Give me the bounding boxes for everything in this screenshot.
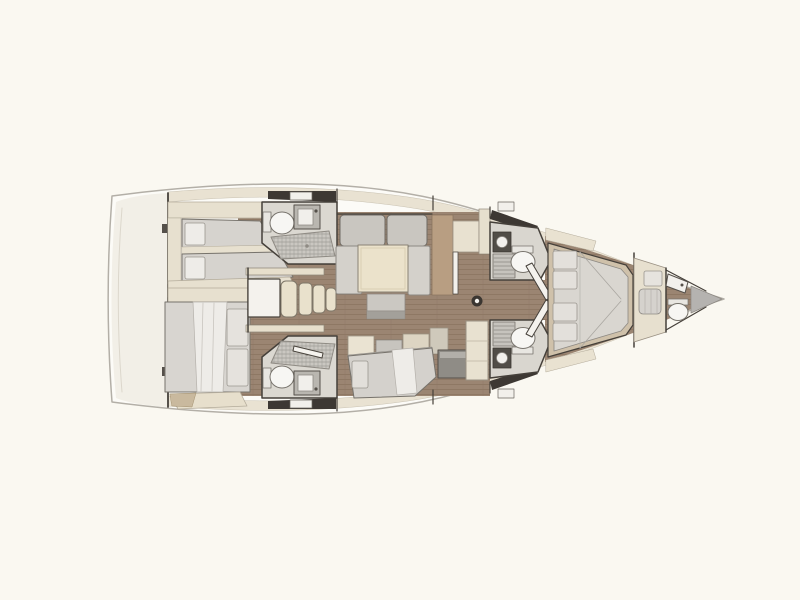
companionway-step-2 xyxy=(299,283,312,315)
salon-ottoman-front xyxy=(367,311,405,319)
port-mid-head-sink-basin xyxy=(497,237,508,248)
salon-tan-panel xyxy=(432,215,453,295)
bow-head-faucet xyxy=(681,284,684,287)
stbd-aft-head-faucet xyxy=(314,387,317,390)
stbd-cabin-foot-wedge xyxy=(170,393,196,407)
stbd-bed-blanket xyxy=(193,302,227,392)
stbd-bed-pillow-2 xyxy=(227,349,248,386)
fwd-cream-strip xyxy=(479,209,490,254)
settee-pillow xyxy=(352,361,368,388)
floor-plan-shapes xyxy=(0,0,800,600)
stbd-aft-head-toilet xyxy=(270,366,294,388)
yacht-floor-plan xyxy=(0,0,800,600)
galley-tall-cabinet xyxy=(466,321,488,380)
companionway-step-4 xyxy=(326,288,336,311)
companionway-step-1 xyxy=(281,281,297,317)
sofa-back-left xyxy=(340,215,385,246)
sofa-chaise-right xyxy=(408,246,430,295)
galley-counter-strip xyxy=(440,352,466,358)
port-aft-head-shower-drain xyxy=(305,244,309,248)
stbd-aft-head-sink-basin xyxy=(298,375,313,391)
nook-door xyxy=(453,252,458,294)
floor-plan-canvas xyxy=(0,0,800,600)
bow-head-toilet xyxy=(668,304,688,321)
companionway-sill-top xyxy=(246,268,324,275)
port-aft-head-toilet xyxy=(270,212,294,234)
port-cabin-shelf-top xyxy=(168,202,262,218)
owner-bed-pillow-3 xyxy=(553,303,577,321)
port-aft-head-sink-basin xyxy=(298,209,313,225)
salon-ottoman xyxy=(367,294,405,311)
owner-bed-pillow-1 xyxy=(553,251,577,269)
mast-post-center xyxy=(475,299,479,303)
companionway-panel xyxy=(248,279,280,317)
companionway-step-3 xyxy=(313,285,325,313)
vanity-cushion xyxy=(644,271,662,286)
owner-bed-pillow-4 xyxy=(553,323,577,341)
stbd-mid-head-hatch xyxy=(498,389,514,398)
nook-cabinet xyxy=(453,221,479,252)
port-aft-head-hatch xyxy=(290,192,312,200)
port-mid-head-hatch xyxy=(498,202,514,211)
salon-table xyxy=(358,245,408,292)
port-cabin-shelf-left xyxy=(168,218,181,284)
stbd-bed-pillow-1 xyxy=(227,309,248,346)
port-berth-2-pillow xyxy=(185,257,205,279)
stbd-mid-head-sink-basin xyxy=(497,353,508,364)
stbd-aft-head-hatch xyxy=(290,400,312,408)
stbd-cabin-cabinet xyxy=(168,288,250,302)
companionway-sill-bottom xyxy=(246,325,324,332)
sofa-back-right xyxy=(387,215,427,246)
port-aft-head-faucet xyxy=(314,209,317,212)
vanity-bench xyxy=(639,289,661,314)
owner-bed-pillow-2 xyxy=(553,271,577,289)
port-berth-1-pillow xyxy=(185,223,205,245)
transom-platform xyxy=(112,193,169,407)
